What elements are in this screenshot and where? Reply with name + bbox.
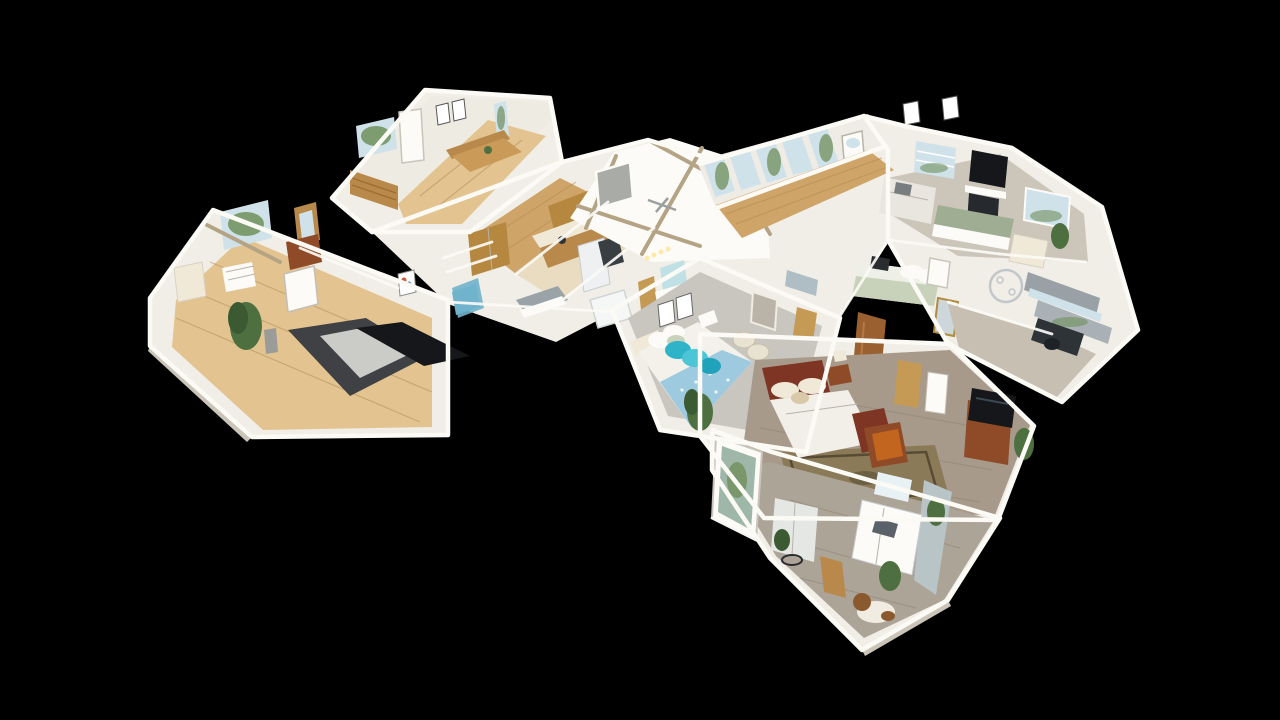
headboard xyxy=(927,258,950,288)
plant-leaves xyxy=(228,302,248,334)
door-arch-glass xyxy=(846,138,860,148)
hall-door xyxy=(925,372,948,414)
vanity-light xyxy=(652,253,657,258)
chest-contents xyxy=(872,429,903,461)
wicker-chair xyxy=(174,262,206,302)
hall-art-2 xyxy=(942,96,959,120)
salad-bowl xyxy=(484,146,492,154)
dollhouse-render xyxy=(0,0,1280,720)
plant xyxy=(879,561,901,591)
closet-door xyxy=(894,360,922,408)
office-chair xyxy=(1044,338,1060,350)
plant xyxy=(774,529,790,551)
dog-patch xyxy=(881,611,895,621)
lamp-shade xyxy=(833,350,847,362)
teal-pillow xyxy=(699,358,721,374)
framed-art-1 xyxy=(436,103,450,125)
dog-head xyxy=(853,593,871,611)
nightstand xyxy=(826,364,852,386)
vanity-light xyxy=(666,247,671,252)
closet-door xyxy=(284,266,318,312)
framed-art-2 xyxy=(452,99,466,121)
hall-art-1 xyxy=(903,101,920,125)
woven-pouf xyxy=(747,344,769,360)
accent-pillow xyxy=(791,392,809,404)
vanity-light xyxy=(659,250,664,255)
dollhouse-viewport[interactable] xyxy=(0,0,1280,720)
framed-art-1 xyxy=(658,300,675,327)
large-art xyxy=(751,292,777,330)
gray-curtain xyxy=(264,328,278,354)
nook-plant xyxy=(1051,223,1069,249)
framed-art-2 xyxy=(676,293,693,320)
vanity-light xyxy=(645,256,650,261)
